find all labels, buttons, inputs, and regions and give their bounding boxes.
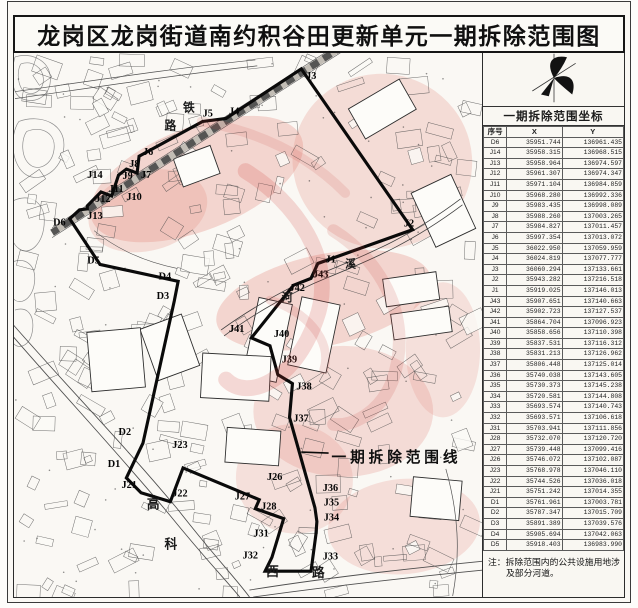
vertex-label: J35 — [324, 498, 339, 509]
road-label-char: 路 — [312, 565, 325, 580]
coord-y: 137146.013 — [562, 285, 623, 296]
coord-x: 35732.070 — [507, 434, 562, 445]
vertex-label: J14 — [87, 170, 102, 181]
point-id: J3 — [484, 264, 507, 275]
vertex-label: J27 — [235, 492, 250, 503]
vertex-label: D4 — [159, 271, 172, 282]
table-row: J835988.260137003.265 — [484, 211, 624, 222]
point-id: J6 — [484, 232, 507, 243]
outer-frame: 龙岗区龙岗街道南约积谷田更新单元一期拆除范围图 D6J14J13J12J11J1… — [7, 1, 631, 603]
point-id: J14 — [484, 148, 507, 159]
point-id: J40 — [484, 328, 507, 339]
coord-x: 35858.656 — [507, 328, 562, 339]
table-row: J1435958.315136968.515 — [484, 148, 624, 159]
coord-x: 35918.403 — [507, 540, 562, 551]
coord-y: 137127.537 — [562, 307, 623, 318]
point-id: D3 — [484, 518, 507, 529]
coord-x: 35693.574 — [507, 402, 562, 413]
vertex-label: J37 — [293, 413, 308, 424]
point-id: J43 — [484, 296, 507, 307]
coord-y: 137059.959 — [562, 243, 623, 254]
table-row: J3435720.581137144.808 — [484, 391, 624, 402]
coord-y: 137011.457 — [562, 222, 623, 233]
coord-x: 35951.744 — [507, 137, 562, 148]
table-row: J2735739.448137099.416 — [484, 444, 624, 455]
vertex-label: J13 — [87, 211, 102, 222]
vertex-label: J3 — [306, 71, 316, 82]
coord-y: 137039.576 — [562, 518, 623, 529]
road-label-char: 科 — [164, 536, 177, 551]
vertex-label: J10 — [126, 192, 141, 203]
point-id: J35 — [484, 381, 507, 392]
coord-y: 136968.515 — [562, 148, 623, 159]
coord-y: 137120.720 — [562, 434, 623, 445]
coord-x: 35905.694 — [507, 529, 562, 540]
point-id: D5 — [484, 540, 507, 551]
table-row: J4235902.723137127.537 — [484, 307, 624, 318]
column-header: 序号 — [484, 127, 507, 138]
table-row: J2635746.072137102.087 — [484, 455, 624, 466]
vertex-label: J8 — [129, 159, 139, 170]
point-id: J7 — [484, 222, 507, 233]
vertex-label: J38 — [296, 381, 311, 392]
coord-y: 136983.990 — [562, 540, 623, 551]
coord-x: 35907.651 — [507, 296, 562, 307]
point-id: J34 — [484, 391, 507, 402]
coord-x: 35958.964 — [507, 158, 562, 169]
point-id: D6 — [484, 137, 507, 148]
point-id: J13 — [484, 158, 507, 169]
point-id: J2 — [484, 275, 507, 286]
table-row: D335891.389137039.576 — [484, 518, 624, 529]
coord-y: 137110.398 — [562, 328, 623, 339]
coord-x: 36022.950 — [507, 243, 562, 254]
vertex-label: J34 — [324, 512, 339, 523]
coord-x: 35693.571 — [507, 413, 562, 424]
coord-x: 35739.448 — [507, 444, 562, 455]
point-id: J9 — [484, 201, 507, 212]
coord-y: 137099.416 — [562, 444, 623, 455]
point-id: J38 — [484, 349, 507, 360]
point-id: J1 — [484, 285, 507, 296]
table-row: J2235744.526137036.018 — [484, 476, 624, 487]
coordinate-table: 序号XY D635951.744136961.435J1435958.31513… — [483, 126, 624, 551]
side-panel: 一期拆除范围坐标 序号XY D635951.744136961.435J1435… — [483, 50, 624, 597]
table-row: J336060.294137133.661 — [484, 264, 624, 275]
point-id: J4 — [484, 254, 507, 265]
coord-y: 137125.014 — [562, 360, 623, 371]
point-id: D1 — [484, 497, 507, 508]
point-id: J37 — [484, 360, 507, 371]
coord-x: 35902.723 — [507, 307, 562, 318]
coord-y: 136984.859 — [562, 179, 623, 190]
table-row: D435905.694137042.063 — [484, 529, 624, 540]
vertex-label: J33 — [323, 551, 338, 562]
table-title: 一期拆除范围坐标 — [483, 106, 624, 126]
coord-x: 35997.354 — [507, 232, 562, 243]
coord-y: 137144.808 — [562, 391, 623, 402]
coord-y: 137036.018 — [562, 476, 623, 487]
coord-x: 35961.307 — [507, 169, 562, 180]
table-row: J3535730.373137145.238 — [484, 381, 624, 392]
coord-x: 35919.025 — [507, 285, 562, 296]
table-row: J4335907.651137140.663 — [484, 296, 624, 307]
point-id: J33 — [484, 402, 507, 413]
table-header-row: 序号XY — [484, 127, 624, 138]
table-row: J1035968.280136992.336 — [484, 190, 624, 201]
north-arrow-icon — [528, 52, 580, 104]
coord-y: 137216.518 — [562, 275, 623, 286]
point-id: J27 — [484, 444, 507, 455]
page-title: 龙岗区龙岗街道南约积谷田更新单元一期拆除范围图 — [37, 17, 601, 51]
vertex-label: J31 — [253, 528, 268, 539]
map-area: D6J14J13J12J11J10J9J8J7J6J5J4J3J2J1J43J4… — [14, 50, 483, 597]
coord-x: 35740.038 — [507, 370, 562, 381]
point-id: J11 — [484, 179, 507, 190]
coord-x: 35891.389 — [507, 518, 562, 529]
vertex-label: D2 — [119, 427, 132, 438]
column-header: X — [507, 127, 562, 138]
note: 注：拆除范围内的公共设施用地涉及部分河道。 — [483, 551, 624, 580]
coord-y: 137145.238 — [562, 381, 623, 392]
point-id: D4 — [484, 529, 507, 540]
coord-y: 137126.962 — [562, 349, 623, 360]
coord-x: 35971.104 — [507, 179, 562, 190]
coord-y: 137013.072 — [562, 232, 623, 243]
coord-x: 35831.213 — [507, 349, 562, 360]
table-row: J2135751.242137014.355 — [484, 487, 624, 498]
point-id: J39 — [484, 338, 507, 349]
north-arrow — [483, 50, 624, 106]
vertex-label: J26 — [267, 472, 282, 483]
point-id: J12 — [484, 169, 507, 180]
coord-y: 137143.605 — [562, 370, 623, 381]
map-svg: D6J14J13J12J11J10J9J8J7J6J5J4J3J2J1J43J4… — [14, 50, 482, 597]
vertex-label: J9 — [122, 171, 132, 182]
vertex-label: J22 — [172, 489, 187, 500]
railway-label-char: 铁 — [183, 100, 195, 114]
coord-x: 35968.280 — [507, 190, 562, 201]
table-row: J3135703.941137111.856 — [484, 423, 624, 434]
road-label-char: 高 — [147, 497, 160, 512]
coord-y: 136974.597 — [562, 158, 623, 169]
table-row: J3335693.574137140.743 — [484, 402, 624, 413]
vertex-label: J6 — [143, 147, 153, 158]
coord-y: 137096.923 — [562, 317, 623, 328]
vertex-label: J11 — [109, 184, 124, 195]
coord-y: 137077.777 — [562, 254, 623, 265]
title-box: 龙岗区龙岗街道南约积谷田更新单元一期拆除范围图 — [13, 15, 625, 53]
coord-y: 137003.265 — [562, 211, 623, 222]
coord-y: 136998.089 — [562, 201, 623, 212]
coord-x: 35988.260 — [507, 211, 562, 222]
coord-x: 35984.827 — [507, 222, 562, 233]
coord-y: 137102.087 — [562, 455, 623, 466]
vertex-label: J32 — [243, 550, 258, 561]
table-row: D235787.347137015.709 — [484, 508, 624, 519]
table-row: J635997.354137013.072 — [484, 232, 624, 243]
point-id: D2 — [484, 508, 507, 519]
vertex-label: D3 — [157, 291, 170, 302]
coord-x: 35761.961 — [507, 497, 562, 508]
vertex-label: J2 — [404, 219, 414, 230]
point-id: J21 — [484, 487, 507, 498]
point-id: J31 — [484, 423, 507, 434]
coord-x: 35768.978 — [507, 466, 562, 477]
table-row: J1235961.307136974.347 — [484, 169, 624, 180]
coord-x: 35943.282 — [507, 275, 562, 286]
table-row: J3935837.531137116.312 — [484, 338, 624, 349]
coord-y: 137014.355 — [562, 487, 623, 498]
table-row: J3735806.448137125.014 — [484, 360, 624, 371]
table-row: J235943.282137216.518 — [484, 275, 624, 286]
coord-x: 35720.581 — [507, 391, 562, 402]
table-row: J4135864.704137096.923 — [484, 317, 624, 328]
vertex-label: J36 — [323, 483, 338, 494]
vertex-label: J7 — [141, 170, 151, 181]
coord-x: 35744.526 — [507, 476, 562, 487]
coord-y: 137140.663 — [562, 296, 623, 307]
table-row: J4035858.656137110.398 — [484, 328, 624, 339]
column-header: Y — [562, 127, 623, 138]
river-label-char: 溪 — [345, 256, 356, 270]
point-id: J22 — [484, 476, 507, 487]
table-row: J3835831.213137126.962 — [484, 349, 624, 360]
road-label-char: 西 — [266, 565, 279, 579]
coord-x: 35806.448 — [507, 360, 562, 371]
coord-x: 35751.242 — [507, 487, 562, 498]
coord-y: 137046.110 — [562, 466, 623, 477]
point-id: J32 — [484, 413, 507, 424]
point-id: J42 — [484, 307, 507, 318]
coord-x: 36060.294 — [507, 264, 562, 275]
point-id: J36 — [484, 370, 507, 381]
coord-x: 35958.315 — [507, 148, 562, 159]
coord-x: 35837.531 — [507, 338, 562, 349]
table-row: J935983.435136998.089 — [484, 201, 624, 212]
coord-y: 137111.856 — [562, 423, 623, 434]
point-id: J10 — [484, 190, 507, 201]
point-id: J41 — [484, 317, 507, 328]
point-id: J23 — [484, 466, 507, 477]
coord-y: 137116.312 — [562, 338, 623, 349]
table-row: D135761.961137003.781 — [484, 497, 624, 508]
coord-y: 137003.781 — [562, 497, 623, 508]
table-row: J2335768.978137046.110 — [484, 466, 624, 477]
table-row: J3235693.571137106.618 — [484, 413, 624, 424]
railway-label-char: 路 — [164, 118, 176, 132]
table-row: J3635740.038137143.605 — [484, 370, 624, 381]
coord-x: 35703.941 — [507, 423, 562, 434]
coord-y: 137106.618 — [562, 413, 623, 424]
table-row: J735984.827137011.457 — [484, 222, 624, 233]
vertex-label: J23 — [172, 440, 187, 451]
vertex-label: J12 — [95, 194, 110, 205]
point-id: J8 — [484, 211, 507, 222]
vertex-label: J40 — [274, 329, 289, 340]
vertex-label: D5 — [87, 255, 100, 266]
table-row: J536022.950137059.959 — [484, 243, 624, 254]
vertex-label: J41 — [229, 324, 244, 335]
table-row: J436024.819137077.777 — [484, 254, 624, 265]
coord-y: 136992.336 — [562, 190, 623, 201]
table-row: J1335958.964136974.597 — [484, 158, 624, 169]
point-id: J5 — [484, 243, 507, 254]
coord-x: 36024.819 — [507, 254, 562, 265]
coord-y: 137042.063 — [562, 529, 623, 540]
vertex-label: D6 — [53, 218, 66, 229]
coord-x: 35864.704 — [507, 317, 562, 328]
table-row: D535918.403136983.990 — [484, 540, 624, 551]
table-row: D635951.744136961.435 — [484, 137, 624, 148]
coord-y: 137140.743 — [562, 402, 623, 413]
coord-y: 137133.661 — [562, 264, 623, 275]
page: 龙岗区龙岗街道南约积谷田更新单元一期拆除范围图 D6J14J13J12J11J1… — [0, 0, 638, 608]
vertex-label: J28 — [261, 502, 276, 513]
vertex-label: J4 — [229, 106, 239, 117]
coord-x: 35746.072 — [507, 455, 562, 466]
coord-x: 35787.347 — [507, 508, 562, 519]
vertex-label: D1 — [108, 459, 121, 470]
point-id: J28 — [484, 434, 507, 445]
body-row: D6J14J13J12J11J10J9J8J7J6J5J4J3J2J1J43J4… — [13, 49, 625, 598]
table-row: J1135971.104136984.859 — [484, 179, 624, 190]
coord-y: 136974.347 — [562, 169, 623, 180]
note-text: 注：拆除范围内的公共设施用地涉及部分河道。 — [488, 557, 621, 580]
coord-y: 136961.435 — [562, 137, 623, 148]
legend-label: 一期拆除范围线 — [332, 448, 462, 466]
vertex-label: J21 — [121, 480, 136, 491]
coord-y: 137015.709 — [562, 508, 623, 519]
coord-x: 35983.435 — [507, 201, 562, 212]
point-id: J26 — [484, 455, 507, 466]
table-row: J2835732.070137120.720 — [484, 434, 624, 445]
coord-x: 35730.373 — [507, 381, 562, 392]
table-row: J135919.025137146.013 — [484, 285, 624, 296]
